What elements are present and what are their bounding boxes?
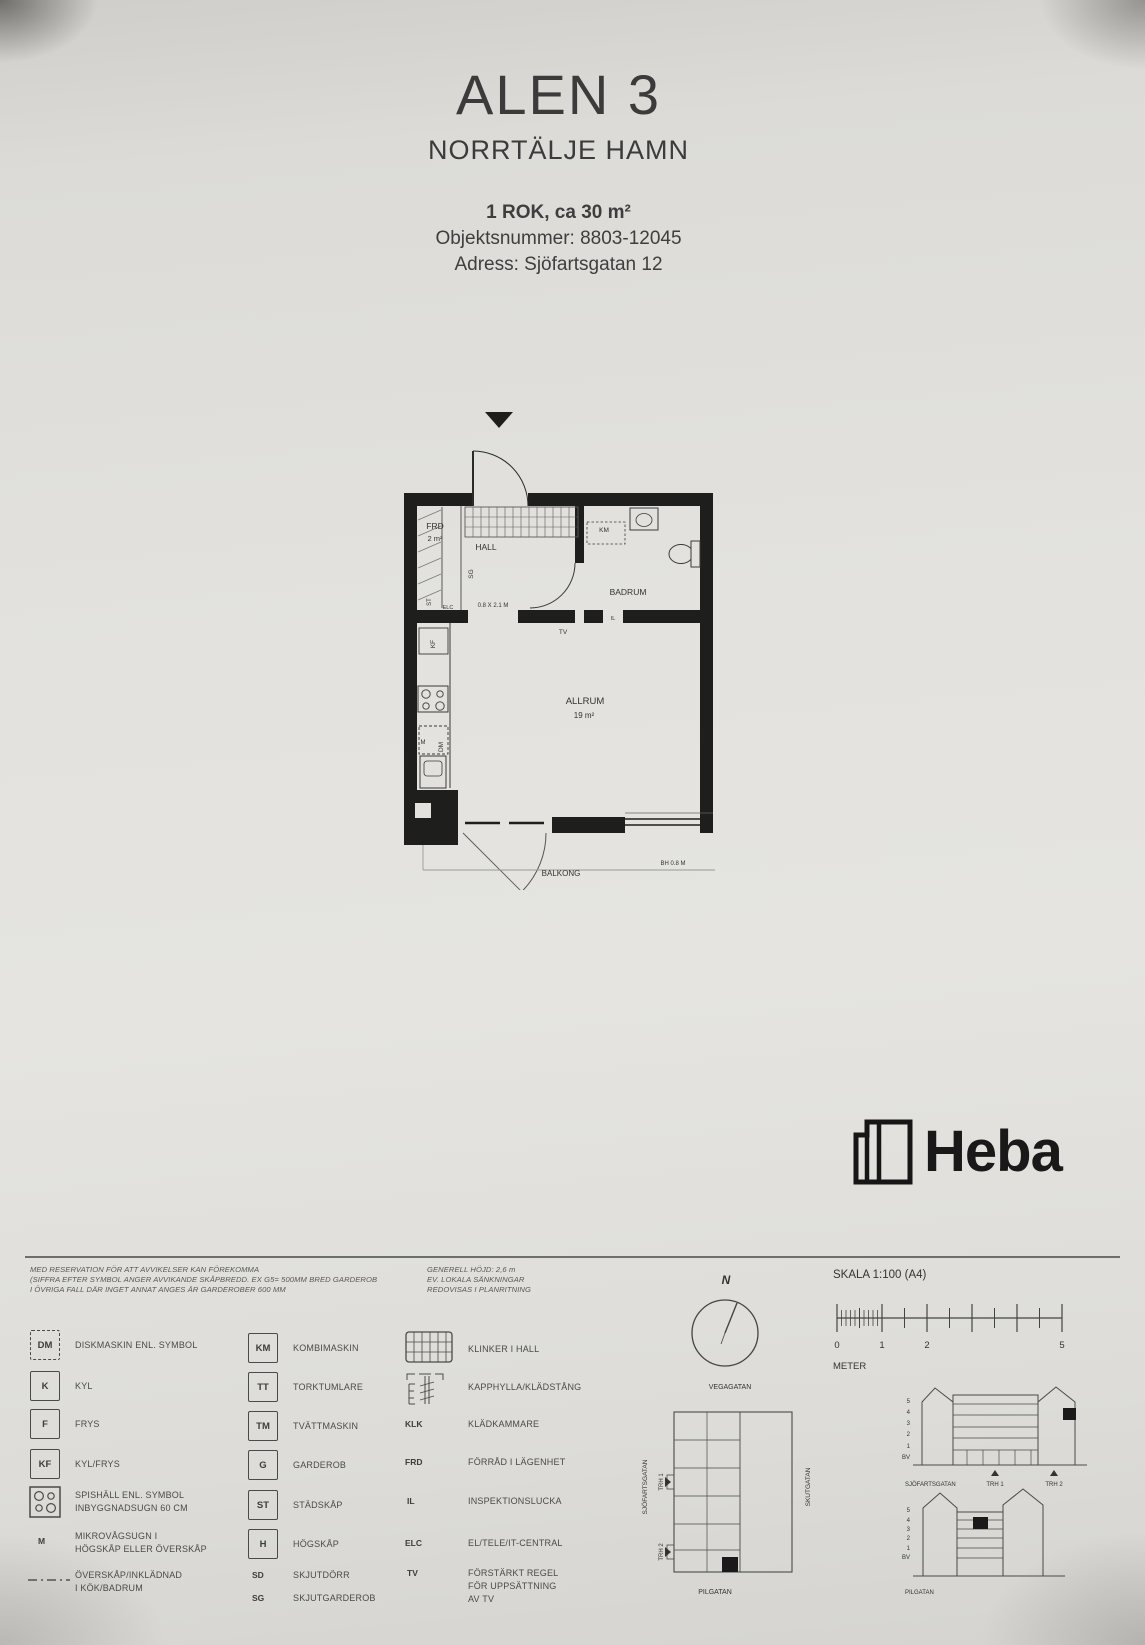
legend-label: SKJUTDÖRR <box>293 1570 350 1580</box>
street-vegagatan: VEGAGATAN <box>709 1384 752 1391</box>
street-skutgatan: SKUTGATAN <box>805 1467 812 1506</box>
floorplan-document: ALEN 3 NORRTÄLJE HAMN 1 ROK, ca 30 m² Ob… <box>0 0 1145 1645</box>
symbol-text: ST <box>257 1500 269 1511</box>
disclaimer-line: MED RESERVATION FÖR ATT AVVIKELSER KAN F… <box>30 1265 377 1275</box>
street-sjofartsgatan: SJÖFARTSGATAN <box>641 1459 649 1514</box>
trh2-arrow-icon <box>665 1547 671 1557</box>
divider-line <box>25 1256 1120 1258</box>
legend-label: EL/TELE/IT-CENTRAL <box>468 1538 563 1548</box>
wall-notch <box>415 803 431 818</box>
symbol-text: K <box>42 1381 49 1392</box>
elevation-street-label: SJÖFARTSGATAN <box>905 1481 956 1488</box>
site-trh1-label: TRH 1 <box>659 1473 665 1491</box>
legend-label: STÄDSKÅP <box>293 1500 343 1510</box>
label-allrum: ALLRUM <box>566 696 605 707</box>
legend-symbol-g: G <box>248 1450 278 1480</box>
klinker-tile-icon <box>405 1331 453 1363</box>
floor-label: 1 <box>907 1546 911 1552</box>
legend-label: INSPEKTIONSLUCKA <box>468 1496 562 1506</box>
legend-symbol-m: M <box>38 1536 45 1546</box>
disclaimer-line: GENERELL HÖJD: 2,6 m <box>427 1265 531 1275</box>
symbol-text: G <box>259 1460 266 1471</box>
legend-label: GARDEROB <box>293 1460 346 1470</box>
floor-plan: FRD 2 m² HALL SG ST ELC 0.8 X 2.1 M KM B… <box>385 390 715 890</box>
floor-label: 4 <box>907 1410 911 1416</box>
floor-label: 5 <box>907 1399 911 1405</box>
symbol-text: F <box>42 1419 48 1430</box>
label-balkong: BALKONG <box>542 869 581 878</box>
heba-logo-text: Heba <box>924 1118 1062 1185</box>
legend-label: FÖRSTÄRKT REGEL <box>468 1568 558 1578</box>
legend-symbol-h: H <box>248 1529 278 1559</box>
disclaimer-right: GENERELL HÖJD: 2,6 m EV. LOKALA SÄNKNING… <box>427 1265 531 1295</box>
trh2-marker-icon <box>1050 1470 1058 1476</box>
legend-symbol-dm: DM <box>30 1330 60 1360</box>
legend-label: FRYS <box>75 1419 100 1429</box>
symbol-text: DM <box>38 1340 53 1351</box>
bathroom-door <box>530 563 575 608</box>
legend-label: KLÄDKAMMARE <box>468 1419 539 1429</box>
legend-label: KYL <box>75 1381 93 1391</box>
legend-label: ÖVERSKÅP/INKLÄDNAD <box>75 1570 182 1580</box>
document-header: ALEN 3 NORRTÄLJE HAMN 1 ROK, ca 30 m² Ob… <box>0 62 1131 278</box>
elevation-pilgatan: 5 4 3 2 1 BV PILGATAN <box>902 1489 1065 1596</box>
legend-label: INBYGGNADSUGN 60 CM <box>75 1503 188 1513</box>
kapphylla-icon <box>405 1370 445 1406</box>
symbol-text: KM <box>256 1343 271 1354</box>
symbol-text: TM <box>256 1421 270 1432</box>
legend-label: SKJUTGARDEROB <box>293 1593 376 1603</box>
compass-north-label: N <box>722 1273 731 1287</box>
label-dm: DM <box>438 742 445 752</box>
legend-symbol-il: IL <box>407 1496 415 1506</box>
hob-icon <box>29 1486 61 1518</box>
apartment-location-marker <box>722 1557 738 1572</box>
page-title: ALEN 3 <box>0 62 1131 127</box>
floor-label: BV <box>902 1555 910 1561</box>
legend-symbol-st: ST <box>248 1490 278 1520</box>
legend-label: DISKMASKIN ENL. SYMBOL <box>75 1340 197 1350</box>
legend-symbol-elc: ELC <box>405 1538 422 1548</box>
floor-label: 3 <box>907 1421 911 1427</box>
scale-unit: METER <box>833 1361 866 1372</box>
trh1-arrow-icon <box>665 1477 671 1487</box>
building-elevations: 5 4 3 2 1 BV SJÖFARTSGATAN TRH 1 <box>895 1378 1105 1613</box>
page-subtitle: NORRTÄLJE HAMN <box>0 135 1131 166</box>
legend-symbol-sd: SD <box>252 1570 264 1580</box>
legend-label: KLINKER I HALL <box>468 1344 539 1354</box>
elevation-street-label: PILGATAN <box>905 1590 934 1596</box>
disclaimer-line: EV. LOKALA SÄNKNINGAR <box>427 1275 531 1285</box>
object-number: Objektsnummer: 8803-12045 <box>0 226 1131 252</box>
label-bh: BH 0.8 M <box>660 861 685 867</box>
label-m: M <box>421 740 426 746</box>
disclaimer-line: I ÖVRIGA FALL DÄR INGET ANNAT ANGES ÄR G… <box>30 1285 377 1295</box>
hall-floor-grid <box>465 507 578 537</box>
label-km: KM <box>599 527 609 534</box>
legend-label: TORKTUMLARE <box>293 1382 363 1392</box>
legend-symbol-k: K <box>30 1371 60 1401</box>
apartment-elevation-marker <box>973 1517 988 1529</box>
disclaimer-line: REDOVISAS I PLANRITNING <box>427 1285 531 1295</box>
label-door-dim: 0.8 X 2.1 M <box>478 603 509 609</box>
entrance-door <box>473 451 528 506</box>
dash-dot-line-icon <box>28 1577 70 1583</box>
apartment-size: 1 ROK, ca 30 m² <box>0 200 1131 226</box>
street-pilgatan: PILGATAN <box>698 1589 732 1596</box>
label-frd: FRD <box>426 521 443 531</box>
legend-symbol-km: KM <box>248 1333 278 1363</box>
legend-symbol-sg: SG <box>252 1593 264 1603</box>
elevation-trh2-label: TRH 2 <box>1045 1482 1063 1488</box>
scale-bar: SKALA 1:100 (A4) 0 1 2 5 METER <box>828 1262 1128 1377</box>
scale-title: SKALA 1:100 (A4) <box>833 1269 927 1281</box>
legend-symbol-frd: FRD <box>405 1457 422 1467</box>
site-trh2-label: TRH 2 <box>659 1543 665 1561</box>
elevation-trh1-label: TRH 1 <box>986 1482 1004 1488</box>
label-hall: HALL <box>475 542 497 552</box>
legend-label: FÖRRÅD I LÄGENHET <box>468 1457 565 1467</box>
label-il: IL <box>611 616 616 622</box>
label-frd-area: 2 m² <box>428 534 444 543</box>
legend-label: KOMBIMASKIN <box>293 1343 359 1353</box>
legend-symbol-tm: TM <box>248 1411 278 1441</box>
heba-logo: Heba <box>852 1116 1062 1186</box>
scale-tick-5: 5 <box>1059 1340 1064 1351</box>
legend-symbol-kf: KF <box>30 1449 60 1479</box>
floor-label: BV <box>902 1455 910 1461</box>
label-allrum-area: 19 m² <box>574 711 595 720</box>
legend-symbol-tt: TT <box>248 1372 278 1402</box>
legend-label: FÖR UPPSÄTTNING <box>468 1581 557 1591</box>
symbol-text: KF <box>39 1459 52 1470</box>
legend-label: HÖGSKÅP <box>293 1539 339 1549</box>
disclaimer-line: (SIFFRA EFTER SYMBOL ANGER AVVIKANDE SKÅ… <box>30 1275 377 1285</box>
label-kf: KF <box>430 640 437 648</box>
address: Adress: Sjöfartsgatan 12 <box>0 252 1131 278</box>
scale-tick-2: 2 <box>924 1340 929 1351</box>
bathroom-fixtures <box>587 508 700 567</box>
site-plan: VEGAGATAN SJÖFARTSGATAN TRH 1 TRH 2 SKUT… <box>595 1365 835 1610</box>
floor-label: 3 <box>907 1527 911 1533</box>
heba-logo-icon <box>852 1116 914 1186</box>
label-tv: TV <box>559 629 568 636</box>
legend-label: MIKROVÅGSUGN I <box>75 1531 157 1541</box>
legend-label: AV TV <box>468 1594 494 1604</box>
disclaimer-left: MED RESERVATION FÖR ATT AVVIKELSER KAN F… <box>30 1265 377 1295</box>
floor-label: 5 <box>907 1508 911 1514</box>
legend-label: SPISHÄLL ENL. SYMBOL <box>75 1490 184 1500</box>
legend-label: I KÖK/BADRUM <box>75 1583 143 1593</box>
floor-label: 2 <box>907 1536 911 1542</box>
legend-symbol-f: F <box>30 1409 60 1439</box>
entrance-arrow-icon <box>485 412 513 428</box>
legend-symbol-tv: TV <box>407 1568 418 1578</box>
scale-tick-1: 1 <box>879 1340 884 1351</box>
legend-label: KYL/FRYS <box>75 1459 120 1469</box>
apartment-elevation-marker <box>1063 1408 1076 1420</box>
label-elc: ELC <box>443 605 454 611</box>
compass-icon: N <box>680 1258 770 1373</box>
elevation-sjofartsgatan: 5 4 3 2 1 BV SJÖFARTSGATAN TRH 1 <box>902 1387 1087 1488</box>
label-st: ST <box>427 598 433 606</box>
scale-tick-0: 0 <box>834 1340 839 1351</box>
legend-label: TVÄTTMASKIN <box>293 1421 358 1431</box>
label-badrum: BADRUM <box>610 587 647 597</box>
floor-label: 1 <box>907 1444 911 1450</box>
legend-label: HÖGSKÅP ELLER ÖVERSKÅP <box>75 1544 207 1554</box>
label-sg: SG <box>468 569 475 578</box>
trh1-marker-icon <box>991 1470 999 1476</box>
symbol-text: H <box>260 1539 267 1550</box>
floor-label: 4 <box>907 1518 911 1524</box>
legend-symbol-klk: KLK <box>405 1419 422 1429</box>
floor-label: 2 <box>907 1432 911 1438</box>
symbol-text: TT <box>257 1382 269 1393</box>
legend-label: KAPPHYLLA/KLÄDSTÅNG <box>468 1382 581 1392</box>
